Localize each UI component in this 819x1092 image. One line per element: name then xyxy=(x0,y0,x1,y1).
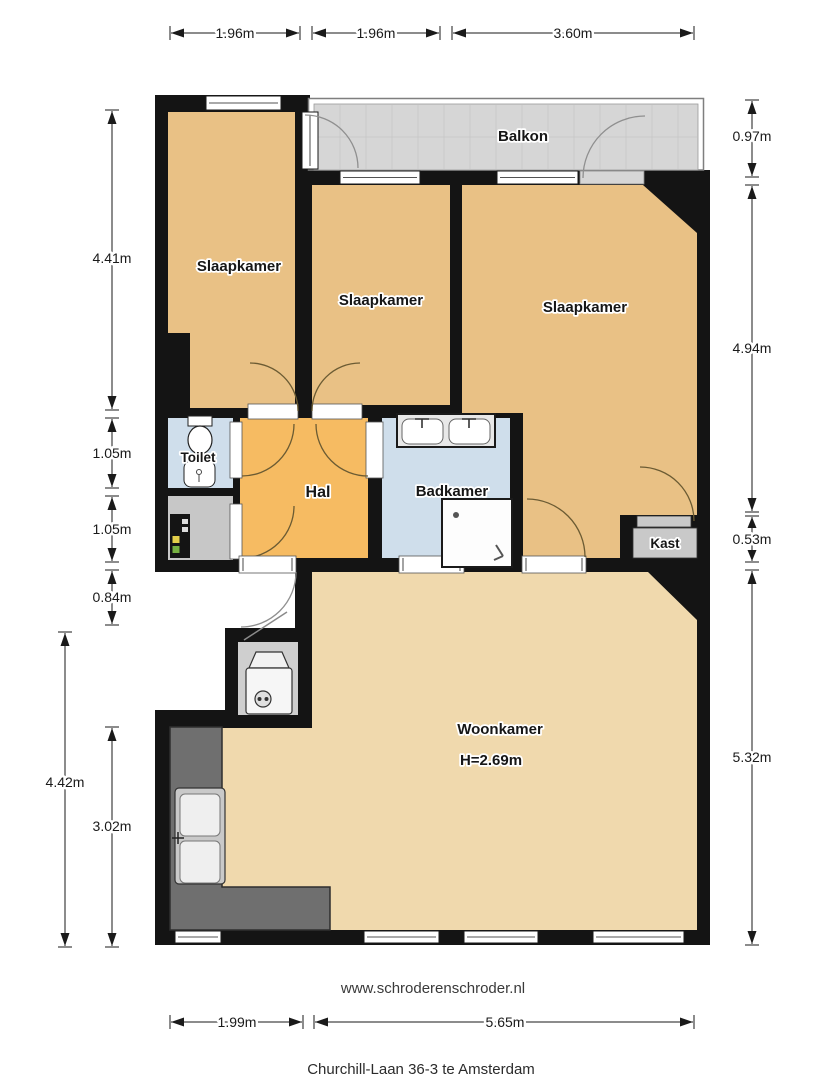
window-living-2 xyxy=(364,931,439,943)
svg-text:1.05m: 1.05m xyxy=(93,521,132,537)
svg-text:1.99m: 1.99m xyxy=(218,1014,257,1030)
svg-text:3.02m: 3.02m xyxy=(93,818,132,834)
svg-text:4.94m: 4.94m xyxy=(733,340,772,356)
label-balkon: Balkon xyxy=(498,128,548,145)
window-living-4 xyxy=(593,931,684,943)
svg-text:0.97m: 0.97m xyxy=(733,128,772,144)
svg-text:5.65m: 5.65m xyxy=(486,1014,525,1030)
label-toilet: Toilet xyxy=(181,450,217,465)
footer-website: www.schroderenschroder.nl xyxy=(340,980,525,997)
dim-top-1: 1.96m xyxy=(170,25,300,41)
svg-text:3.60m: 3.60m xyxy=(554,25,593,41)
meter-panel xyxy=(170,514,190,558)
dim-right-3: 0.53m xyxy=(733,516,772,562)
dim-left-2: 1.05m xyxy=(93,418,132,488)
floorplan-drawing: Balkon Slaapkamer Slaapkamer Slaapkamer … xyxy=(0,0,819,1092)
label-hal: Hal xyxy=(306,484,331,501)
svg-text:0.84m: 0.84m xyxy=(93,589,132,605)
dim-right-2: 4.94m xyxy=(733,185,772,512)
svg-text:4.41m: 4.41m xyxy=(93,250,132,266)
dim-left-3: 1.05m xyxy=(93,496,132,562)
toilet-fixture xyxy=(188,416,212,454)
window-bedroom-right xyxy=(497,171,578,184)
svg-text:5.32m: 5.32m xyxy=(733,749,772,765)
window-living-3 xyxy=(464,931,538,943)
svg-text:1.05m: 1.05m xyxy=(93,445,132,461)
dim-bottom-1: 1.99m xyxy=(170,1014,303,1030)
dim-left-6: 3.02m xyxy=(93,727,132,947)
label-badkamer: Badkamer xyxy=(416,483,489,500)
dim-left-4: 0.84m xyxy=(93,570,132,625)
dim-bottom-2: 5.65m xyxy=(314,1014,694,1030)
label-slaapkamer-right: Slaapkamer xyxy=(543,299,627,316)
label-slaapkamer-left: Slaapkamer xyxy=(197,258,281,275)
label-slaapkamer-middle: Slaapkamer xyxy=(339,292,423,309)
bathroom-vanity xyxy=(397,414,495,447)
dim-left-5: 4.42m xyxy=(46,632,85,947)
label-woonkamer: Woonkamer xyxy=(457,721,543,738)
dim-left-1: 4.41m xyxy=(93,110,132,410)
window-bedroom-left-top xyxy=(206,96,281,110)
label-kast: Kast xyxy=(650,536,680,551)
svg-text:4.42m: 4.42m xyxy=(46,774,85,790)
shower xyxy=(442,499,512,567)
label-ceiling-height: H=2.69m xyxy=(460,752,522,769)
floorplan-page: Balkon Slaapkamer Slaapkamer Slaapkamer … xyxy=(0,0,819,1092)
svg-text:1.96m: 1.96m xyxy=(357,25,396,41)
svg-text:1.96m: 1.96m xyxy=(216,25,255,41)
dim-right-4: 5.32m xyxy=(733,570,772,945)
hall-floor xyxy=(240,418,368,558)
svg-text:0.53m: 0.53m xyxy=(733,531,772,547)
dim-top-3: 3.60m xyxy=(452,25,694,41)
dim-top-2: 1.96m xyxy=(312,25,440,41)
dim-right-1: 0.97m xyxy=(733,100,772,177)
window-living-1 xyxy=(175,931,221,943)
window-bedroom-middle xyxy=(340,171,420,184)
footer-address: Churchill-Laan 36-3 te Amsterdam xyxy=(307,1061,535,1078)
